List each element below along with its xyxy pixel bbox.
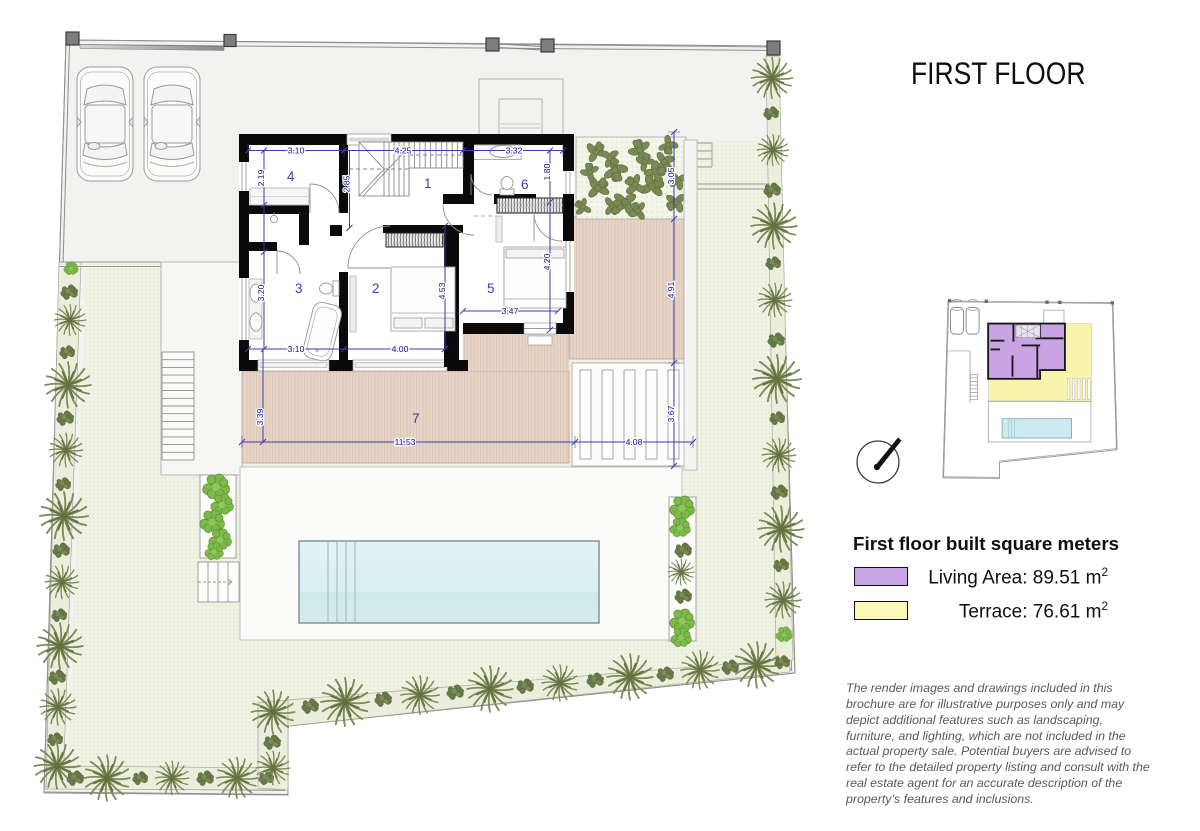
svg-text:1: 1 (424, 176, 432, 191)
svg-text:3.47: 3.47 (502, 306, 519, 316)
svg-text:3.10: 3.10 (288, 146, 305, 156)
svg-text:4.91: 4.91 (666, 281, 676, 298)
svg-text:3.39: 3.39 (255, 408, 265, 425)
svg-text:4.53: 4.53 (437, 282, 447, 299)
svg-text:2: 2 (372, 281, 380, 296)
svg-text:2.85: 2.85 (342, 175, 352, 192)
svg-text:4.20: 4.20 (542, 253, 552, 270)
svg-text:3.10: 3.10 (288, 344, 305, 354)
svg-text:4.00: 4.00 (392, 344, 409, 354)
svg-text:11.53: 11.53 (395, 437, 416, 447)
svg-text:7: 7 (412, 411, 420, 426)
svg-text:4: 4 (287, 169, 295, 184)
svg-text:1.80: 1.80 (542, 163, 552, 180)
svg-text:6: 6 (521, 177, 529, 192)
svg-text:3.67: 3.67 (666, 405, 676, 422)
svg-text:5: 5 (487, 281, 495, 296)
svg-text:3.05: 3.05 (666, 167, 676, 184)
svg-text:4.25: 4.25 (395, 146, 412, 156)
svg-text:3.20: 3.20 (256, 284, 266, 301)
svg-text:2.19: 2.19 (256, 169, 266, 186)
svg-text:3.32: 3.32 (506, 146, 523, 156)
svg-text:3: 3 (295, 281, 303, 296)
svg-text:4.08: 4.08 (626, 437, 643, 447)
